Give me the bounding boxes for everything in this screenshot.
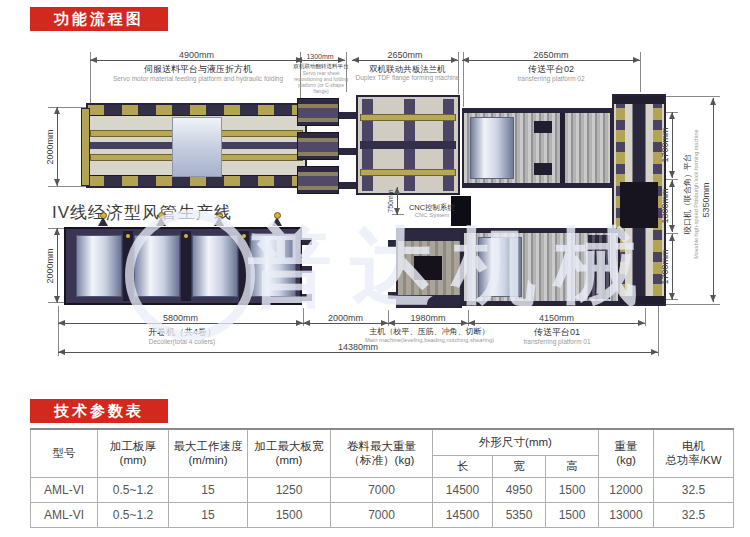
coil: [134, 235, 180, 297]
cell-max-width: 1500: [248, 502, 331, 527]
coil: [478, 237, 522, 297]
dim-bottom-4150: 4150mm: [468, 323, 645, 324]
pittsburgh-lock-machine: [612, 94, 666, 306]
sheet-metal: [172, 117, 222, 177]
col-header-coil-weight: 卷料最大重量（标准）(kg): [331, 429, 433, 477]
col-header-length: 长: [433, 455, 493, 477]
brochure-page: 功能流程图: [0, 0, 750, 537]
dim-top-2650-b: 2650mm: [462, 60, 640, 61]
tdf-flange-machine: [356, 95, 460, 195]
cell-thickness: 0.5~1.2: [98, 477, 169, 502]
cell-thickness: 0.5~1.2: [98, 502, 169, 527]
decoiler-label: 开卷机（共4卷） Decoiler(total 4 coilers): [112, 327, 252, 346]
col-header-model: 型号: [31, 429, 98, 477]
cell-max-width: 1250: [248, 477, 331, 502]
cell-length: 14500: [433, 477, 493, 502]
coil: [250, 235, 296, 297]
tech-params-badge: 技术参数表: [30, 399, 168, 423]
col-header-speed: 最大工作速度(m/min): [169, 429, 248, 477]
main-machine-label: 主机（校平、压筋、冲角、切断） Main machine(leveling,be…: [352, 327, 507, 344]
dim-top-1300: 1300mm: [295, 60, 345, 61]
col-header-width: 宽: [493, 455, 546, 477]
dim-bottom-1980: 1980mm: [388, 323, 468, 324]
col-header-dims-group: 外形尺寸(mm): [433, 429, 599, 455]
cell-width: 4950: [493, 477, 546, 502]
col-header-height: 高: [546, 455, 599, 477]
dim-left-2000-top: 2000mm: [57, 107, 58, 186]
cell-model: AML-VI: [31, 477, 98, 502]
turnover-label: 双机联动翻转送料平台 Servo rear sheet repositionin…: [293, 63, 349, 94]
servo-feeding-machine: [86, 103, 307, 188]
cell-width: 5350: [493, 502, 546, 527]
turnover-unit: [297, 98, 339, 195]
tdf-label: 双机联动共板法兰机 Duplex TDF flange forming mach…: [350, 64, 465, 82]
cell-coil-weight: 7000: [331, 502, 433, 527]
platform01-label: 传送平台01 transferring platform 01: [492, 327, 622, 346]
production-line-title: IV线经济型风管生产线: [52, 201, 232, 224]
transfer-platform-02: [462, 108, 612, 188]
cell-coil-weight: 7000: [331, 477, 433, 502]
platform02-label: 传送平台02 transferring platform 02: [486, 64, 616, 83]
table-row: AML-VI 0.5~1.2 15 1500 7000 14500 5350 1…: [31, 502, 734, 527]
cnc-label: CNC控制系统 CNC System: [404, 203, 460, 219]
cell-speed: 15: [169, 477, 248, 502]
col-header-max-width: 加工最大板宽(mm): [248, 429, 331, 477]
col-header-thickness: 加工板厚(mm): [98, 429, 169, 477]
flow-chart-badge: 功能流程图: [30, 7, 168, 31]
table-row: AML-VI 0.5~1.2 15 1250 7000 14500 4950 1…: [31, 477, 734, 502]
cell-height: 1500: [546, 502, 599, 527]
col-header-motor: 电机总功率/KW: [654, 429, 734, 477]
decoiler-machine: [64, 227, 302, 305]
feeding-label: 伺服送料平台与液压折方机 Servo motor material feedin…: [103, 64, 293, 83]
cell-model: AML-VI: [31, 502, 98, 527]
dim-bottom-2000: 2000mm: [303, 323, 388, 324]
dim-left-2000-bottom: 2000mm: [57, 228, 58, 303]
cell-length: 14500: [433, 502, 493, 527]
cell-speed: 15: [169, 502, 248, 527]
dim-bottom-5800: 5800mm: [58, 323, 303, 324]
coil: [76, 235, 122, 297]
tech-params-table: 型号 加工板厚(mm) 最大工作速度(m/min) 加工最大板宽(mm) 卷料最…: [30, 428, 734, 528]
cell-height: 1500: [546, 477, 599, 502]
dim-right-5350: 5350mm: [713, 98, 714, 302]
dim-right-1300: 1300mm: [672, 180, 673, 232]
lock-machine-label: 咬口机（联合角）平台 Movable high-speed Pittsburgh…: [683, 110, 699, 278]
dim-bottom-14380: 14380mm: [58, 352, 658, 353]
dim-right-1700-bottom: 1700mm: [672, 234, 673, 300]
dim-top-2650-a: 2650mm: [352, 60, 458, 61]
cell-weight: 12000: [599, 477, 654, 502]
transfer-platform-01: [462, 228, 620, 306]
dim-cnc-750: 750mm: [397, 187, 398, 215]
dim-right-1700-top: 1700mm: [672, 112, 673, 178]
cell-weight: 13000: [599, 502, 654, 527]
col-header-weight: 重量(kg): [599, 429, 654, 477]
dim-top-4900: 4900mm: [90, 60, 303, 61]
cell-motor: 32.5: [654, 502, 734, 527]
main-machine: [396, 228, 462, 308]
coil: [470, 117, 514, 179]
coil: [192, 235, 238, 297]
cell-motor: 32.5: [654, 477, 734, 502]
